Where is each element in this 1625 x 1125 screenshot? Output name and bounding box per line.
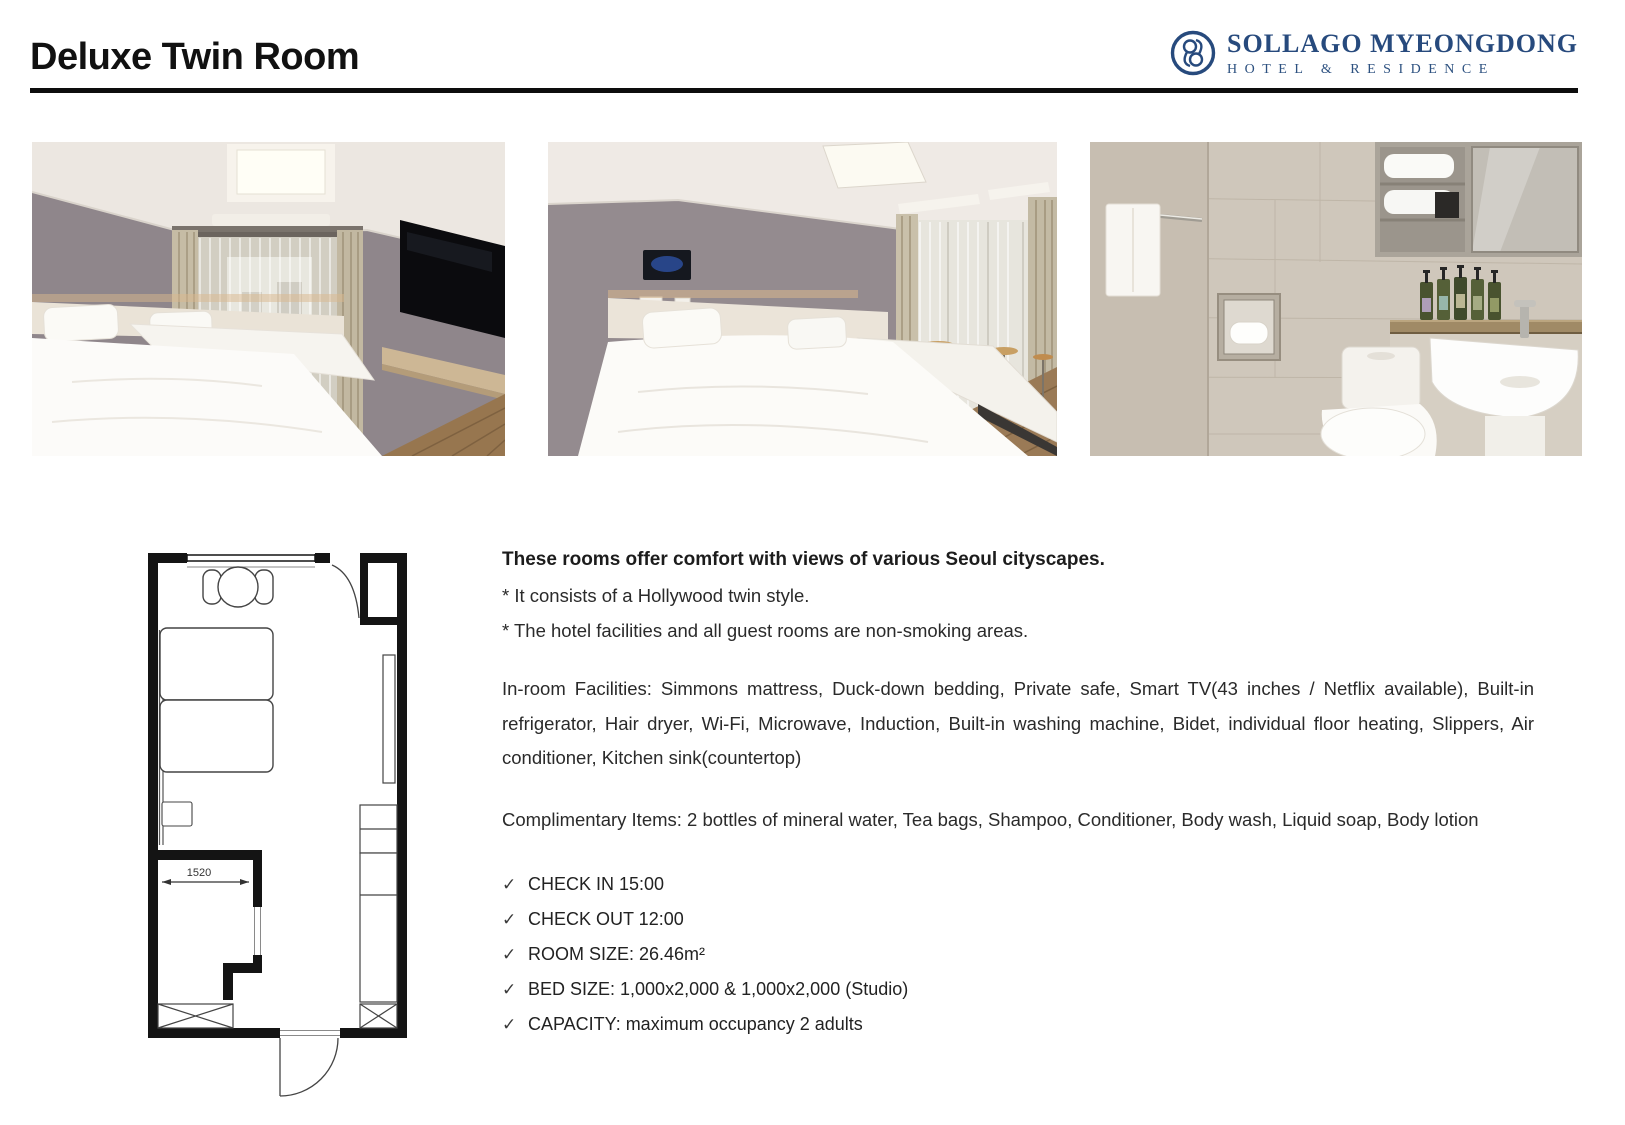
checklist-text: CAPACITY: maximum occupancy 2 adults — [528, 1007, 863, 1041]
hotel-name: SOLLAGO MYEONGDONG — [1227, 29, 1578, 59]
complimentary-items: Complimentary Items: 2 bottles of minera… — [502, 802, 1534, 837]
side-wall — [1090, 142, 1208, 456]
checklist-item-room-size: ✓ ROOM SIZE: 26.46m² — [502, 937, 1534, 972]
bathroom-door-opening — [255, 907, 261, 955]
twin-beds — [160, 628, 273, 826]
room-info-page: Deluxe Twin Room SOLLAGO MYEONGDONG HOTE… — [0, 0, 1625, 1125]
checklist-text: CHECK OUT 12:00 — [528, 902, 684, 936]
check-icon: ✓ — [502, 868, 528, 902]
page-title: Deluxe Twin Room — [30, 36, 359, 79]
skylight — [823, 142, 926, 188]
hotel-subtitle: HOTEL & RESIDENCE — [1227, 62, 1495, 78]
check-icon: ✓ — [502, 903, 528, 937]
in-room-facilities: In-room Facilities: Simmons mattress, Du… — [502, 672, 1534, 776]
toilet-paper-niche — [1218, 294, 1280, 360]
bedroom-photo-2-illustration — [548, 142, 1057, 456]
hotel-logo-text: SOLLAGO MYEONGDONG HOTEL & RESIDENCE — [1227, 29, 1578, 78]
closet-right — [360, 1004, 397, 1028]
note-hollywood-twin: * It consists of a Hollywood twin style. — [502, 578, 1534, 613]
window — [187, 554, 315, 567]
hotel-logo: SOLLAGO MYEONGDONG HOTEL & RESIDENCE — [1169, 28, 1578, 78]
checklist-text: CHECK IN 15:00 — [528, 867, 664, 901]
entrance-door — [280, 1031, 340, 1097]
counter-and-cabinets — [360, 655, 397, 1002]
checklist-item-bed-size: ✓ BED SIZE: 1,000x2,000 & 1,000x2,000 (S… — [502, 972, 1534, 1007]
floor-plan: 1520 — [135, 530, 415, 1110]
note-non-smoking: * The hotel facilities and all guest roo… — [502, 613, 1534, 648]
dimension-1520: 1520 — [162, 867, 249, 885]
bedroom-photo-1-illustration — [32, 142, 505, 456]
dimension-label: 1520 — [187, 867, 211, 879]
checklist-text: BED SIZE: 1,000x2,000 & 1,000x2,000 (Stu… — [528, 972, 908, 1006]
room-spec-checklist: ✓ CHECK IN 15:00 ✓ CHECK OUT 12:00 ✓ ROO… — [502, 867, 1534, 1042]
description-headline: These rooms offer comfort with views of … — [502, 542, 1534, 578]
sollago-logo-icon — [1169, 28, 1217, 78]
shelf-towels — [1384, 154, 1454, 178]
bedroom-photo-2 — [548, 142, 1057, 456]
checklist-item-capacity: ✓ CAPACITY: maximum occupancy 2 adults — [502, 1007, 1534, 1042]
bathroom-photo-illustration — [1090, 142, 1582, 456]
closet-left — [158, 1004, 233, 1028]
bathroom-photo — [1090, 142, 1582, 456]
table-and-chairs — [203, 567, 273, 607]
checklist-item-check-in: ✓ CHECK IN 15:00 — [502, 867, 1534, 902]
mirror-cabinet — [1375, 142, 1582, 257]
check-icon: ✓ — [502, 938, 528, 972]
interior-door-swing — [332, 565, 359, 618]
granite-ledge — [1390, 320, 1582, 333]
ac-vent — [212, 214, 330, 226]
nightstand — [162, 802, 192, 826]
header-divider — [30, 88, 1578, 93]
bedroom-photo-1 — [32, 142, 505, 456]
check-icon: ✓ — [502, 973, 528, 1007]
check-icon: ✓ — [502, 1008, 528, 1042]
checklist-item-check-out: ✓ CHECK OUT 12:00 — [502, 902, 1534, 937]
room-description: These rooms offer comfort with views of … — [502, 542, 1534, 1042]
ceiling-light — [237, 150, 325, 194]
checklist-text: ROOM SIZE: 26.46m² — [528, 937, 705, 971]
